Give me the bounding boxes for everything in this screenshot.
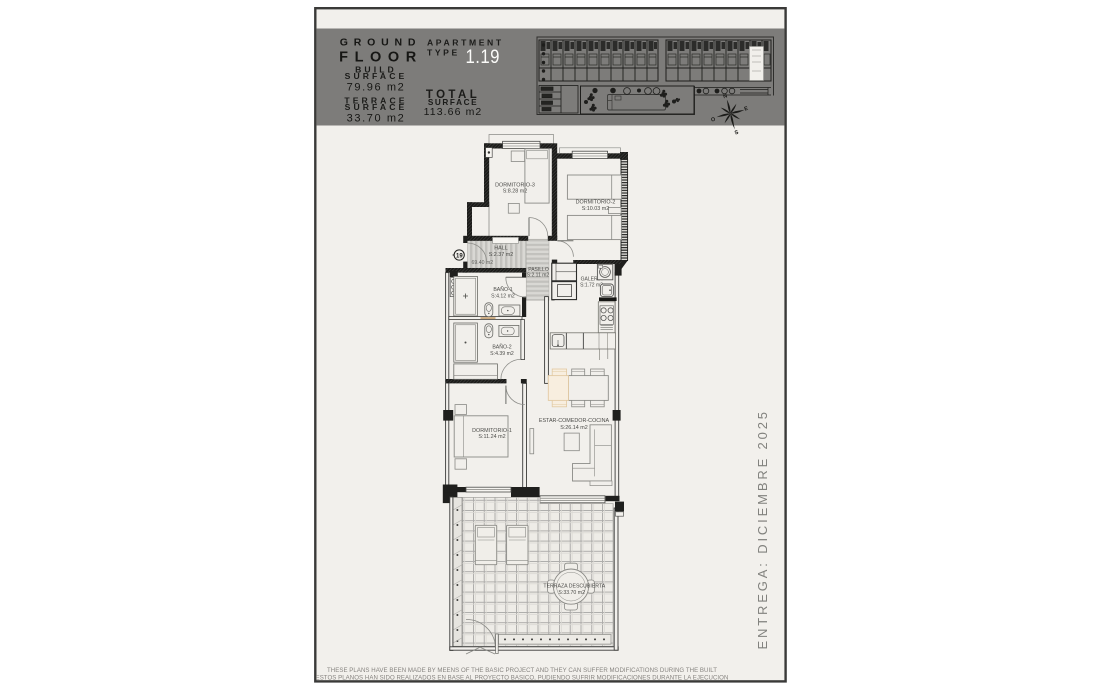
svg-text:S:11.24 m2: S:11.24 m2 [478,434,505,440]
svg-text:79.96 m2: 79.96 m2 [347,81,406,93]
svg-text:S:4.39 m2: S:4.39 m2 [490,351,514,357]
svg-text:S:4.12 m2: S:4.12 m2 [491,294,515,300]
svg-text:SURFACE: SURFACE [345,71,408,81]
svg-text:THESE PLANS HAVE BEEN MADE BY: THESE PLANS HAVE BEEN MADE BY MEENS OF T… [327,667,717,674]
svg-text:33.70 m2: 33.70 m2 [347,113,406,125]
svg-text:69.40 m2: 69.40 m2 [472,260,494,266]
svg-text:S:10.03 m2: S:10.03 m2 [582,206,610,212]
svg-text:BAÑO-2: BAÑO-2 [492,343,511,350]
svg-text:ENTREGA: DICIEMBRE 2025: ENTREGA: DICIEMBRE 2025 [755,409,770,649]
svg-text:GROUND: GROUND [340,37,421,49]
svg-text:DORMITORIO-2: DORMITORIO-2 [576,200,616,206]
svg-text:HALL: HALL [494,246,508,252]
svg-text:19: 19 [456,253,463,259]
svg-text:S:1.72 m2: S:1.72 m2 [580,283,603,289]
svg-text:S:33.70 m2: S:33.70 m2 [558,590,585,596]
svg-text:113.66 m2: 113.66 m2 [424,106,483,118]
svg-text:ESTOS PLANOS HAN SIDO REALIZAD: ESTOS PLANOS HAN SIDO REALIZADOS EN BASE… [316,675,729,682]
svg-text:TERRAZA DESCUBIERTA: TERRAZA DESCUBIERTA [543,583,605,589]
svg-text:S:2.37 m2: S:2.37 m2 [489,252,514,258]
svg-text:S:26.14 m2: S:26.14 m2 [560,425,588,431]
svg-text:1.19: 1.19 [466,46,500,67]
svg-text:DORMITORIO-3: DORMITORIO-3 [495,183,535,189]
svg-text:S:8.28 m2: S:8.28 m2 [503,189,528,195]
svg-text:FLOOR: FLOOR [339,49,423,65]
svg-text:BAÑO-1: BAÑO-1 [493,286,512,293]
svg-text:SURFACE: SURFACE [345,102,408,112]
svg-text:ESTAR-COMEDOR-COCINA: ESTAR-COMEDOR-COCINA [539,418,610,424]
svg-text:S:2.11 m2: S:2.11 m2 [527,273,550,279]
svg-text:TYPE: TYPE [427,48,460,58]
